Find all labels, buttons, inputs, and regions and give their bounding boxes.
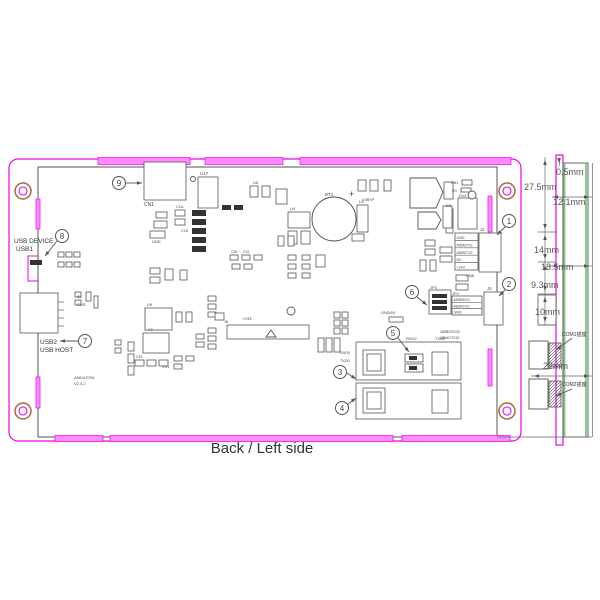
component-pad xyxy=(192,246,206,252)
component-pad xyxy=(234,205,243,210)
com1-socket-label: COM1插座 xyxy=(562,331,586,338)
ref-label: GND xyxy=(152,240,161,244)
ref-label: AMD470FA xyxy=(74,375,95,380)
component-outline xyxy=(232,264,240,269)
connector-pin-label: 485B/TX2 xyxy=(457,251,473,255)
component-outline xyxy=(198,177,218,208)
ref-label: + xyxy=(349,189,354,199)
dimension-label: 10mm xyxy=(535,307,560,317)
component-outline xyxy=(20,293,58,333)
ref-label: RXD0 xyxy=(340,351,350,355)
mounting-hole xyxy=(19,407,27,415)
component-outline xyxy=(128,354,134,363)
bezel-slot xyxy=(36,199,40,229)
component-outline xyxy=(334,312,340,318)
component-outline xyxy=(430,260,436,271)
component-outline xyxy=(186,312,192,322)
ref-label: CN6 xyxy=(466,273,475,278)
com2-socket-label: COM2插座 xyxy=(562,381,586,388)
ref-label: J4 xyxy=(487,286,492,291)
component-outline xyxy=(342,312,348,318)
component-outline xyxy=(288,212,310,228)
component-outline xyxy=(58,262,64,267)
ref-label: V3RXP xyxy=(362,198,375,202)
ref-label: D14 xyxy=(459,193,467,198)
component-pad xyxy=(192,210,206,216)
component-outline xyxy=(384,180,391,191)
component-pad xyxy=(192,228,206,234)
connector-pin-label: 485A/TX2 xyxy=(454,304,470,308)
connector-pin-label: NC xyxy=(457,258,463,262)
component-outline xyxy=(144,162,186,200)
ref-label: GND/5V xyxy=(381,311,396,315)
ref-label: D9 xyxy=(446,203,452,208)
ref-label: J2 xyxy=(480,227,485,232)
dimension-label: 18.5mm xyxy=(541,262,574,272)
ref-label: CLK xyxy=(181,229,189,233)
callout-number-2: 2 xyxy=(507,280,512,289)
component-outline xyxy=(458,198,477,229)
component-outline xyxy=(176,312,182,322)
component-outline xyxy=(432,390,448,413)
component-pad xyxy=(409,356,417,360)
ref-label: C1A xyxy=(176,205,184,209)
component-outline xyxy=(440,256,452,262)
connector-pin-label: 485A/TX2 xyxy=(457,243,473,247)
component-outline xyxy=(175,210,185,216)
component-outline xyxy=(432,352,448,375)
dimension-label: 14mm xyxy=(534,245,559,255)
component-outline xyxy=(215,313,224,320)
component-outline xyxy=(357,205,368,232)
component-circle xyxy=(191,177,196,182)
ref-label: JP3 xyxy=(430,285,438,290)
ref-label: C43 xyxy=(136,355,142,359)
dimension-label: 0.5mm xyxy=(556,167,584,177)
component-outline xyxy=(288,273,296,278)
component-outline xyxy=(242,255,250,260)
ref-label: C31 xyxy=(243,250,249,254)
component-outline xyxy=(288,255,296,260)
ref-label: U9 xyxy=(147,302,153,307)
component-polygon xyxy=(410,178,443,208)
connector-pin-label: GND xyxy=(457,236,465,240)
component-pad xyxy=(192,219,206,225)
component-circle xyxy=(287,307,295,315)
component-outline xyxy=(86,292,91,301)
ref-label: +V33 xyxy=(242,316,252,321)
component-pad xyxy=(192,237,206,243)
component-outline xyxy=(302,255,310,260)
pcb-engineering-drawing: 27.5mm0.5mm12.1mm14mm18.5mm9.3mm10mm22mm… xyxy=(0,0,600,600)
ref-label: CN1 xyxy=(144,202,154,208)
component-outline xyxy=(302,273,310,278)
ref-label: R1 xyxy=(452,188,458,193)
ref-label: JP4 xyxy=(452,291,460,296)
component-outline xyxy=(174,364,182,369)
usb2-label: USB2 xyxy=(40,339,57,346)
ref-label: RXD2 xyxy=(406,336,417,341)
component-outline xyxy=(262,186,270,197)
callout-number-1: 1 xyxy=(507,217,512,226)
mounting-hole xyxy=(19,187,27,195)
ref-label: U6 xyxy=(253,180,259,185)
component-pad xyxy=(222,205,231,210)
component-outline xyxy=(186,356,194,361)
component-outline xyxy=(94,296,98,308)
component-outline xyxy=(342,328,348,334)
usb1-label: USB1 xyxy=(16,246,33,253)
component-outline xyxy=(420,260,426,271)
component-outline xyxy=(230,255,238,260)
ref-label: V2.4.2 xyxy=(74,381,86,386)
bezel-slot xyxy=(488,196,492,232)
component-outline xyxy=(208,304,216,309)
component-outline xyxy=(479,233,501,272)
dimension-label: 22mm xyxy=(543,361,568,371)
component-outline xyxy=(156,212,167,218)
callout-number-9: 9 xyxy=(117,179,122,188)
component-pad xyxy=(409,366,417,370)
component-outline xyxy=(154,221,167,228)
component-outline xyxy=(174,356,182,361)
component-outline xyxy=(288,264,296,269)
component-outline xyxy=(278,236,284,246)
component-outline xyxy=(326,338,332,352)
component-outline xyxy=(147,360,156,366)
component-pad xyxy=(30,260,42,265)
component-outline xyxy=(318,338,324,352)
component-outline xyxy=(334,320,340,326)
component-circle xyxy=(312,197,356,241)
callout-number-7: 7 xyxy=(83,337,88,346)
component-outline xyxy=(358,180,366,191)
ref-label: C30 xyxy=(231,250,237,254)
component-outline xyxy=(367,392,381,409)
component-outline xyxy=(352,234,364,241)
component-pad xyxy=(432,300,447,304)
component-outline xyxy=(150,268,160,274)
bezel-slot xyxy=(205,158,283,165)
component-pad xyxy=(432,306,447,310)
component-outline xyxy=(175,219,185,225)
callout-number-6: 6 xyxy=(410,288,415,297)
ref-label: TXD0 xyxy=(340,359,350,363)
bezel-slot xyxy=(300,158,511,165)
component-outline xyxy=(342,320,348,326)
component-outline xyxy=(180,270,187,280)
component-outline xyxy=(254,255,262,260)
view-title: Back / Left side xyxy=(211,440,314,457)
bezel-slot xyxy=(402,436,510,442)
component-outline xyxy=(334,328,340,334)
mounting-hole xyxy=(503,187,511,195)
component-outline xyxy=(425,249,435,255)
connector-pin-label: 485B/RX2 xyxy=(454,298,470,302)
dimension-arrow xyxy=(543,160,547,165)
callout-number-8: 8 xyxy=(60,232,65,241)
ref-label: U17 xyxy=(200,171,209,176)
ref-label: BT1 xyxy=(325,192,334,197)
component-circle xyxy=(468,191,476,199)
com-connector-profile xyxy=(529,379,548,409)
component-outline xyxy=(425,240,435,246)
component-outline xyxy=(135,360,144,366)
component-pad xyxy=(432,294,447,298)
component-outline xyxy=(443,206,452,228)
component-outline xyxy=(208,296,216,301)
component-outline xyxy=(370,180,378,191)
component-outline xyxy=(128,366,134,375)
dimension-arrow xyxy=(543,254,547,259)
component-outline xyxy=(66,262,72,267)
bezel-slot xyxy=(36,377,40,408)
component-outline xyxy=(456,284,468,290)
component-outline xyxy=(115,348,121,353)
component-outline xyxy=(367,354,381,371)
component-polygon xyxy=(418,212,441,229)
ref-label: VS1 xyxy=(162,365,169,369)
component-outline xyxy=(208,344,216,349)
component-outline xyxy=(288,236,294,246)
component-outline xyxy=(74,252,80,257)
component-outline xyxy=(145,308,172,330)
component-outline xyxy=(196,334,204,339)
dimension-label: 27.5mm xyxy=(524,182,557,192)
ref-label: 485B2/RX20 xyxy=(440,330,460,334)
component-outline xyxy=(66,252,72,257)
component-outline xyxy=(208,328,216,333)
component-outline xyxy=(484,292,503,325)
dimension-arrow xyxy=(543,235,547,240)
component-outline xyxy=(462,180,472,185)
component-outline xyxy=(208,336,216,341)
component-outline xyxy=(58,252,64,257)
ref-label: 5V xyxy=(77,295,82,299)
ref-label: 485A2/TX20 xyxy=(440,336,460,340)
usb-host-label: USB HOST xyxy=(40,347,73,354)
component-outline xyxy=(301,231,310,244)
component-outline xyxy=(74,262,80,267)
component-outline xyxy=(165,269,173,280)
dimension-arrow xyxy=(543,224,547,229)
bezel-slot xyxy=(488,349,492,386)
component-outline xyxy=(244,264,252,269)
ref-label: U4 xyxy=(290,206,296,211)
mounting-hole xyxy=(503,407,511,415)
ref-label: FB1 xyxy=(451,180,459,185)
callout-number-3: 3 xyxy=(338,368,343,377)
component-outline xyxy=(128,342,134,351)
dimension-arrow xyxy=(534,374,539,378)
component-outline xyxy=(150,277,160,283)
callout-number-5: 5 xyxy=(391,329,396,338)
component-outline xyxy=(334,338,340,352)
callout-number-4: 4 xyxy=(340,404,345,413)
connector-pin-label: +24V xyxy=(457,266,466,270)
ref-label: Y2 xyxy=(148,328,153,332)
component-outline xyxy=(389,317,403,322)
component-outline xyxy=(302,264,310,269)
usb-device-label: USB DEVICE xyxy=(14,238,54,245)
ref-label: GND xyxy=(77,303,86,307)
component-outline xyxy=(276,189,287,204)
component-outline xyxy=(250,186,258,197)
component-outline xyxy=(115,340,121,345)
component-outline xyxy=(196,342,204,347)
component-outline xyxy=(440,247,452,253)
component-outline xyxy=(316,255,325,267)
connector-pin-label: GND xyxy=(454,311,462,315)
component-outline xyxy=(150,231,165,238)
bezel-slot xyxy=(55,436,103,442)
component-outline xyxy=(143,333,169,353)
